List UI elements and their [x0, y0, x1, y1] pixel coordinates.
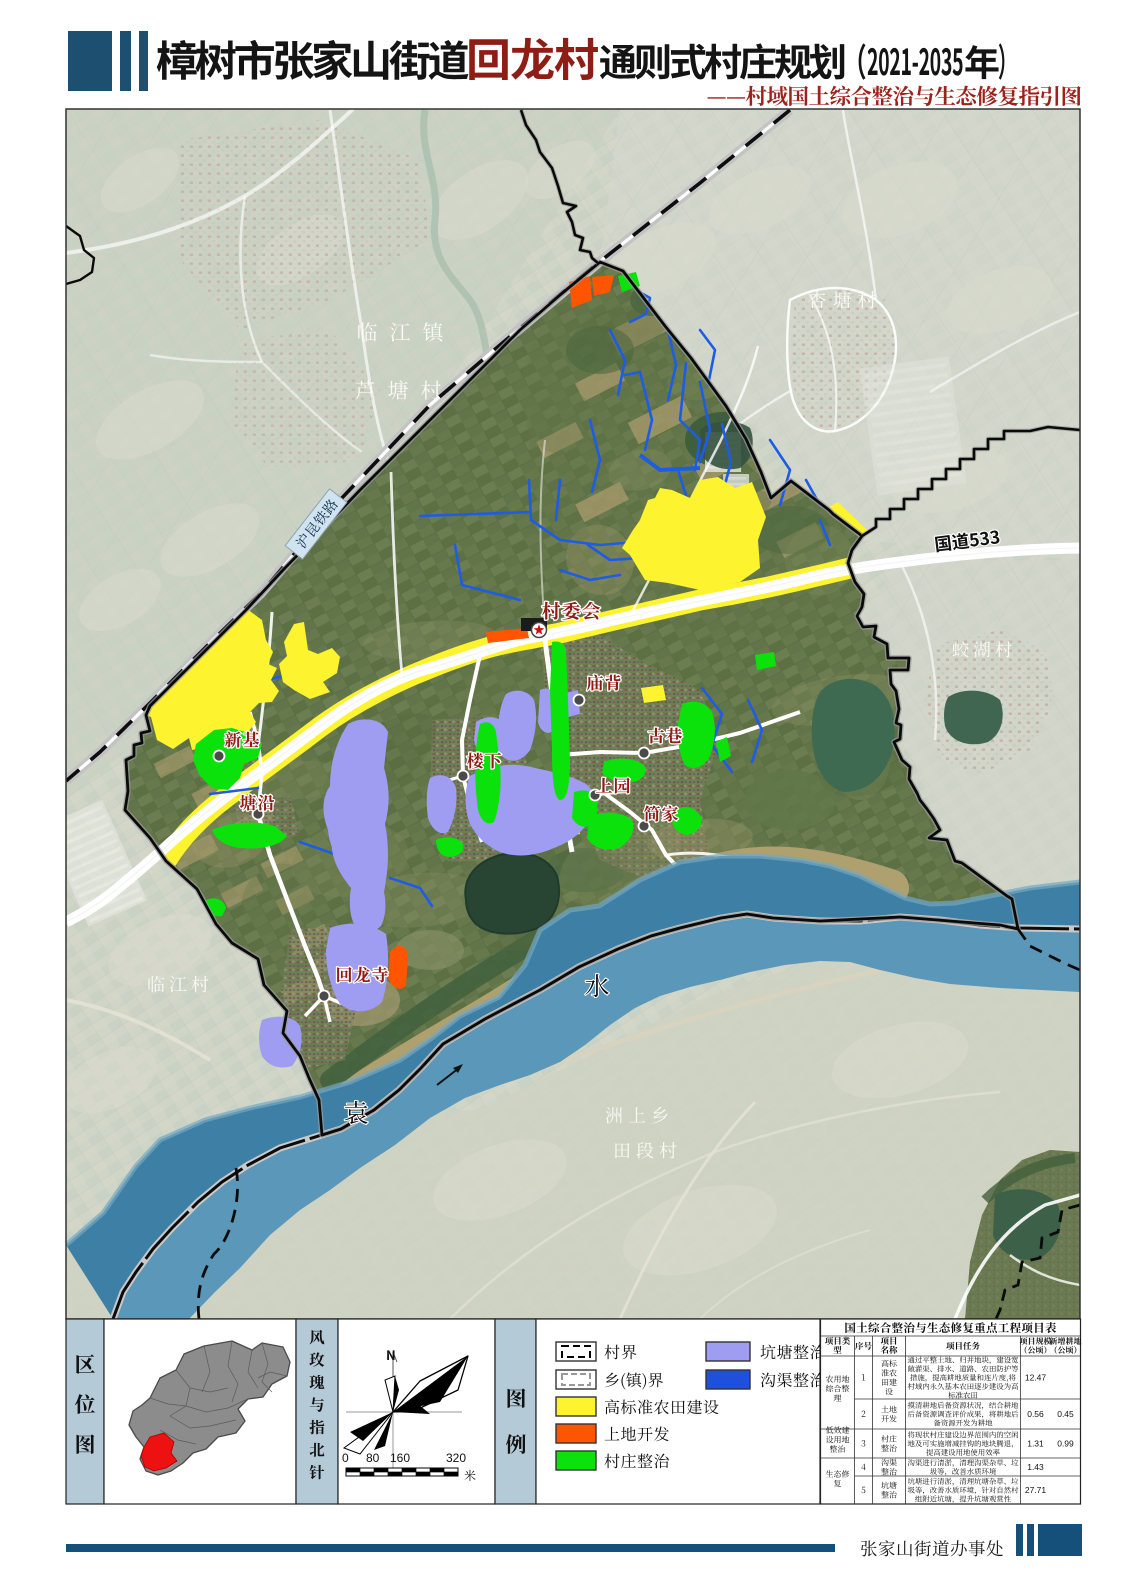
svg-text:80: 80: [366, 1451, 380, 1465]
svg-text:0.45: 0.45: [1057, 1409, 1074, 1419]
svg-text:320: 320: [446, 1451, 466, 1465]
svg-text:1.31: 1.31: [1027, 1439, 1044, 1449]
svg-text:1.43: 1.43: [1027, 1462, 1044, 1472]
svg-text:0.99: 0.99: [1057, 1439, 1074, 1449]
svg-text:160: 160: [390, 1451, 410, 1465]
svg-text:12.47: 12.47: [1025, 1373, 1047, 1383]
svg-text:27.71: 27.71: [1025, 1485, 1047, 1495]
svg-text:0.56: 0.56: [1027, 1409, 1044, 1419]
svg-text:0: 0: [342, 1451, 349, 1465]
